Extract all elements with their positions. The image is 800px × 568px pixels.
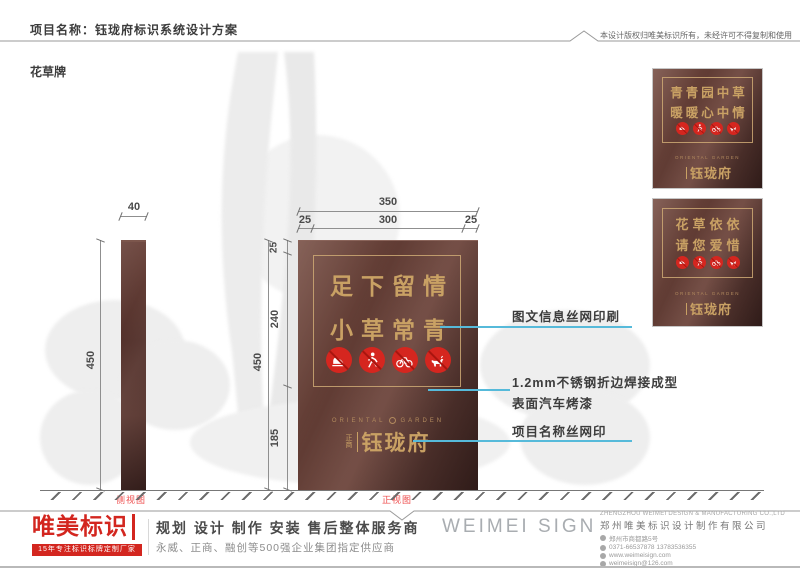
location-icon: [600, 535, 606, 541]
brand-divider: [686, 303, 687, 315]
no-bicycle-icon: [392, 347, 418, 373]
footer-divider: [148, 519, 149, 555]
sign-logo-english: ORIENTAL GARDEN: [298, 417, 478, 424]
panel1-line1: 青青园中草: [653, 82, 762, 101]
project-brand-name: 钰珑府: [690, 299, 732, 318]
side-view-post: [121, 240, 146, 490]
weimei-logo: 唯美标识: [32, 514, 135, 540]
garden-emblem-icon: [389, 417, 396, 424]
brand-divider: [686, 167, 687, 179]
project-brand-name: 钰珑府: [362, 427, 431, 457]
dim-inner-width: 300: [318, 214, 458, 226]
reference-photo-2: 花草依依 请您爱惜 ORIENTAL GARDEN 钰珑府: [652, 198, 763, 327]
phone-icon: [600, 545, 606, 551]
company-name-en: ZHENGZHOU WEIMEI DESIGN & MANUFACTURING …: [600, 511, 796, 517]
sign-type-label: 花草牌: [30, 63, 66, 80]
dim-upper-height: 240: [269, 304, 281, 334]
project-brand-name: 钰珑府: [690, 163, 732, 182]
panel2-line2: 请您爱惜: [653, 235, 762, 254]
front-view-sign: 足下留情 小草常青 ORIENTAL GARDEN 正商: [298, 240, 478, 490]
leader-line: [413, 440, 632, 442]
weimei-sign-wordmark: WEIMEI SIGN: [442, 516, 596, 538]
dim-line: [100, 240, 101, 490]
copyright-note: 本设计版权归唯美标识所有，未经许可不得复制和使用: [600, 30, 792, 41]
sign-brand-row: 钰珑府: [653, 163, 762, 182]
dim-line: [120, 216, 147, 217]
company-name-cn: 郑州唯美标识设计制作有限公司: [600, 518, 796, 532]
panel1-line2: 暖暖心中情: [653, 102, 762, 121]
email-icon: [600, 561, 606, 567]
sign-logo-english: ORIENTAL GARDEN: [653, 155, 762, 160]
company-info: ZHENGZHOU WEIMEI DESIGN & MANUFACTURING …: [600, 511, 796, 567]
brand-prefix-mark: 正商: [346, 435, 353, 449]
footer-services: 规划 设计 制作 安装 售后整体服务商: [156, 518, 420, 538]
company-phone: 0371-66537878 13783536355: [609, 544, 696, 551]
no-bicycle-icon: [710, 122, 723, 135]
annotation-print-info: 图文信息丝网印刷: [512, 306, 620, 325]
no-walking-icon: [693, 122, 706, 135]
design-sheet: 项目名称：钰珑府标识系统设计方案 本设计版权归唯美标识所有，未经许可不得复制和使…: [0, 0, 800, 568]
dim-line: [298, 228, 478, 229]
dim-top-margin: 25: [269, 237, 280, 259]
dim-right-margin: 25: [460, 214, 482, 226]
weimei-tagline: 15年专注标识标牌定制厂家: [32, 544, 142, 556]
footer-clients: 永威、正商、融创等500强企业集团指定供应商: [156, 540, 395, 555]
reference-photo-1: 青青园中草 暖暖心中情 ORIENTAL GARDEN 钰珑府: [652, 68, 763, 189]
dim-side-width: 40: [120, 201, 148, 213]
website-icon: [600, 553, 606, 559]
sign-brand-row: 正商 钰珑府: [298, 427, 478, 457]
dim-line: [287, 240, 288, 490]
panel2-line1: 花草依依: [653, 214, 762, 233]
sign-brand-row: 钰珑府: [653, 299, 762, 318]
prohibition-icon-row: [298, 347, 478, 373]
dim-left-margin: 25: [294, 214, 316, 226]
sign-slogan-line1: 足下留情: [298, 267, 478, 301]
no-bicycle-icon: [710, 256, 723, 269]
sign-logo-english: ORIENTAL GARDEN: [653, 291, 762, 296]
company-address: 郑州市商都路5号: [609, 533, 658, 543]
prohibition-icon-row: [653, 256, 762, 269]
no-stepping-icon: [326, 347, 352, 373]
ground-line: [40, 490, 764, 491]
no-stepping-icon: [676, 122, 689, 135]
brand-divider: [357, 432, 358, 452]
no-stepping-icon: [676, 256, 689, 269]
leader-line: [440, 326, 632, 328]
no-dog-icon: [727, 256, 740, 269]
no-dog-icon: [425, 347, 451, 373]
dim-lower-height: 185: [269, 423, 281, 453]
annotation-material-1: 1.2mm不锈钢折边焊接成型: [512, 372, 678, 391]
dim-total-height: 450: [252, 345, 264, 379]
leader-line: [428, 389, 510, 391]
company-email: weimeisign@126.com: [609, 560, 673, 567]
annotation-material-2: 表面汽车烤漆: [512, 393, 593, 412]
company-website: www.weimeisign.com: [609, 552, 671, 559]
ground-hatch: [40, 492, 764, 500]
page-title: 项目名称：钰珑府标识系统设计方案: [30, 21, 238, 38]
dim-line: [298, 211, 478, 212]
annotation-name-print: 项目名称丝网印: [512, 421, 607, 440]
no-dog-icon: [727, 122, 740, 135]
sign-slogan-line2: 小草常青: [298, 311, 478, 345]
no-walking-icon: [359, 347, 385, 373]
prohibition-icon-row: [653, 122, 762, 135]
dim-total-width: 350: [298, 196, 478, 208]
no-walking-icon: [693, 256, 706, 269]
dim-side-height: 450: [85, 343, 97, 377]
